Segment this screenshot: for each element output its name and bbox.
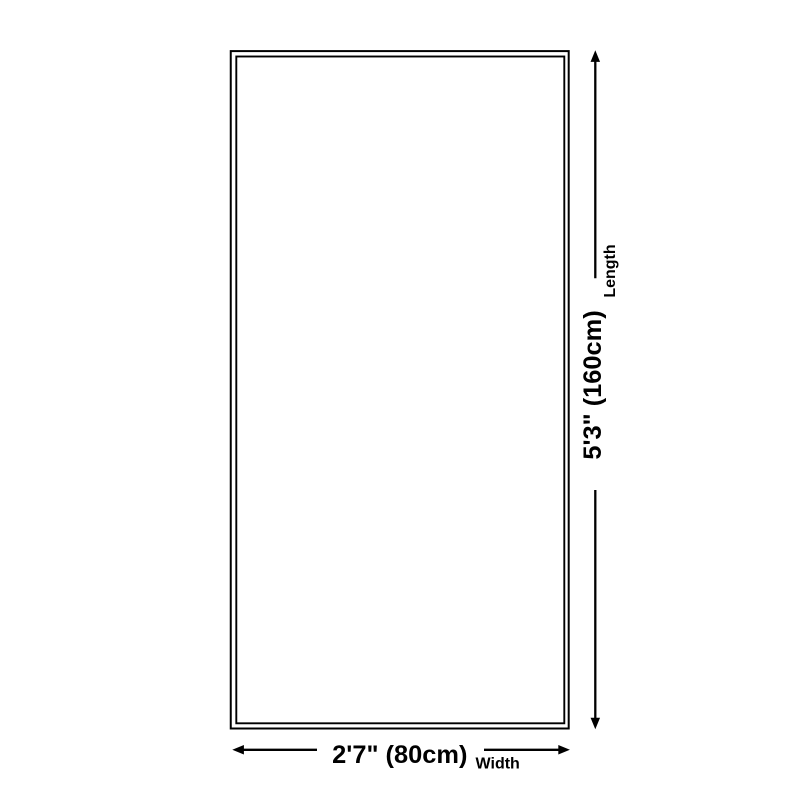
svg-text:Length: Length: [602, 244, 619, 297]
svg-text:5'3" (160cm): 5'3" (160cm): [579, 310, 607, 459]
svg-text:Width: Width: [476, 756, 520, 773]
svg-text:2'7" (80cm): 2'7" (80cm): [332, 741, 467, 769]
